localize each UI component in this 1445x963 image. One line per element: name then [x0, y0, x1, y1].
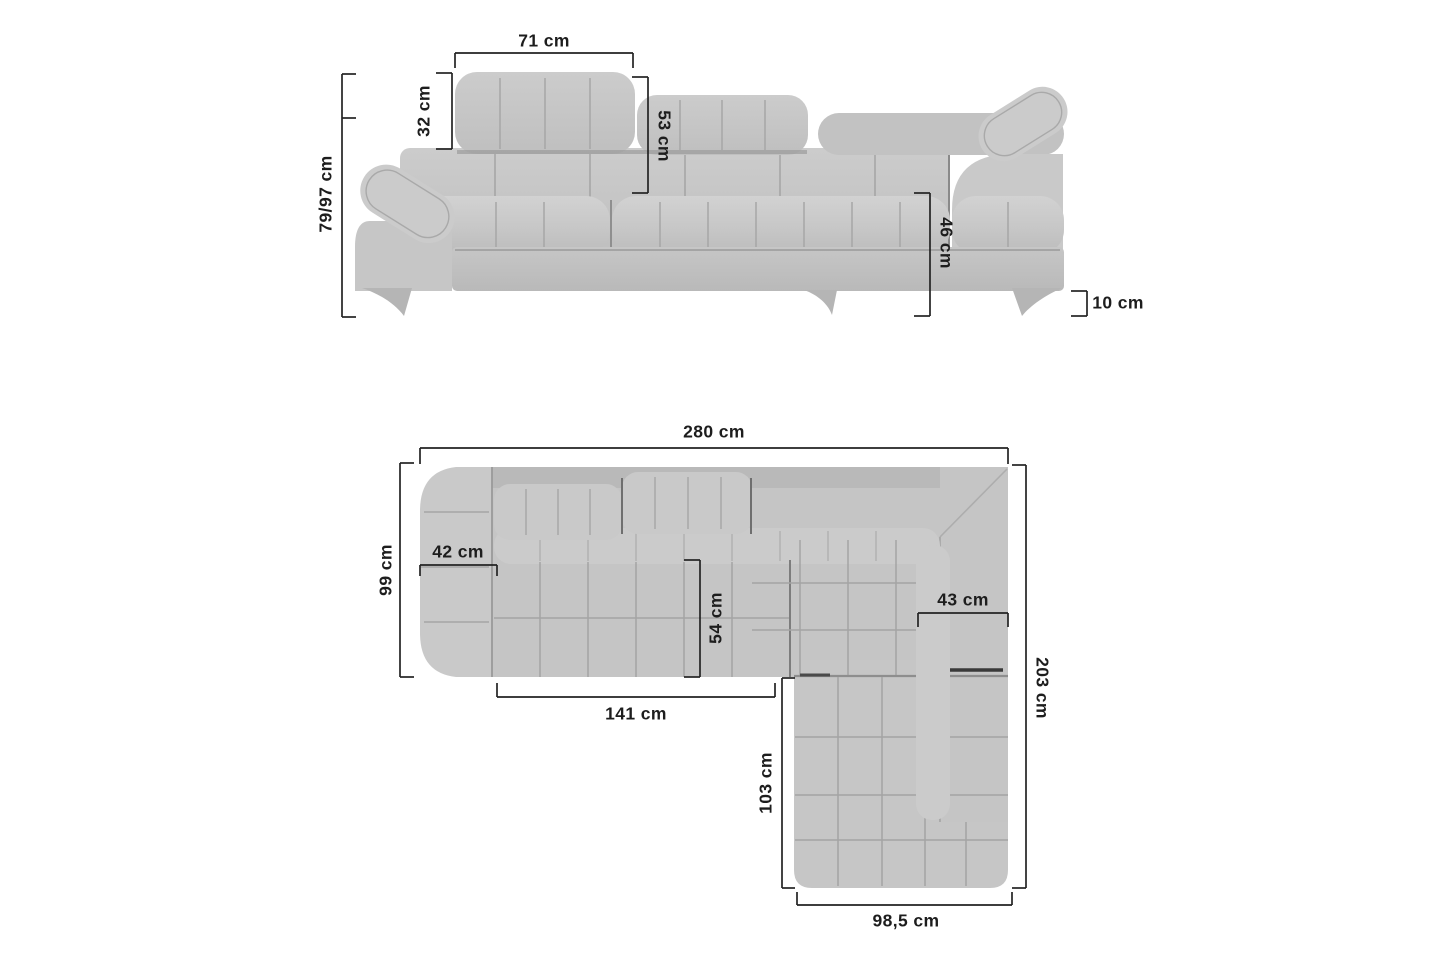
dim-line-leg-height: [1071, 291, 1087, 316]
dim-front-headrest-height-label: 32 cm: [414, 85, 435, 137]
front-leg-middle: [804, 290, 837, 315]
front-leg-left: [362, 288, 412, 316]
front-legs: [362, 288, 1062, 316]
dim-line-overall-width: [420, 448, 1008, 464]
dim-line-overall-depth: [1012, 465, 1026, 888]
dim-plan-seat-width-label: 141 cm: [605, 704, 667, 725]
front-headrest-raised: [455, 72, 635, 154]
dim-front-headrest-width-label: 71 cm: [518, 31, 570, 52]
product-dimensions-diagram: 71 cm 32 cm 53 cm 79/97 cm 46 cm 10 cm 2…: [0, 0, 1445, 963]
dim-line-side-depth: [400, 463, 414, 677]
dim-front-overall-height-label: 79/97 cm: [316, 155, 337, 232]
plan-headrest-middle: [622, 472, 752, 534]
front-headrest-shadow: [457, 150, 807, 154]
plan-view-sofa: [420, 467, 1008, 888]
plan-left-armrest: [420, 467, 492, 677]
plan-right-backrest-band: [940, 467, 1008, 822]
dim-plan-side-depth-label: 99 cm: [376, 544, 397, 596]
dim-line-headrest-width: [455, 53, 633, 68]
plan-chaise-bolster: [916, 545, 950, 820]
dim-line-overall-height: [342, 74, 356, 317]
dim-plan-overall-depth-label: 203 cm: [1032, 657, 1053, 719]
front-seat-cushions: [400, 196, 1064, 254]
dim-plan-chaise-length-label: 103 cm: [756, 752, 777, 814]
sofa-diagram-drawing: [0, 0, 1445, 963]
dim-line-chaise-width: [797, 892, 1012, 905]
dim-line-headrest-height: [436, 73, 452, 149]
dim-front-backrest-height-label: 53 cm: [654, 110, 675, 162]
front-leg-right: [1012, 288, 1062, 316]
dim-plan-chaise-width-label: 98,5 cm: [872, 911, 939, 932]
plan-headrest-left: [494, 484, 622, 540]
dim-plan-armrest-width-label: 42 cm: [432, 542, 484, 563]
dim-plan-corner-seat-width-label: 43 cm: [937, 590, 989, 611]
dim-line-chaise-length: [782, 678, 795, 888]
dim-front-seat-height-label: 46 cm: [936, 217, 957, 269]
dim-plan-overall-width-label: 280 cm: [683, 422, 745, 443]
front-base: [452, 247, 1064, 291]
front-view-sofa: [350, 72, 1077, 316]
dim-plan-seat-depth-label: 54 cm: [706, 592, 727, 644]
dim-line-seat-width: [497, 683, 775, 697]
dim-front-leg-height-label: 10 cm: [1092, 293, 1144, 314]
